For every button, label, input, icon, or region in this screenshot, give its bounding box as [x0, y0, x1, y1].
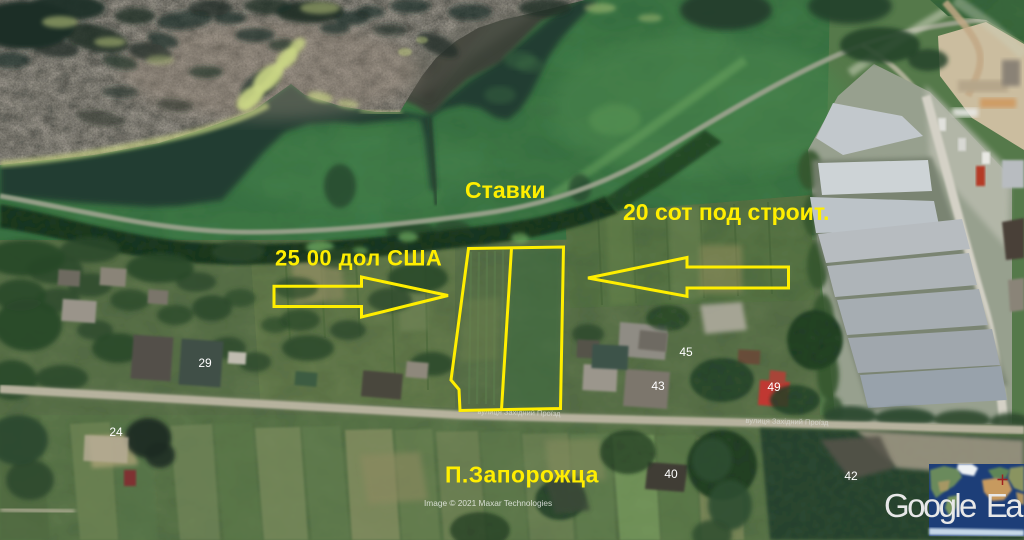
svg-text:49: 49	[767, 380, 781, 394]
svg-text:40: 40	[664, 467, 678, 481]
svg-text:43: 43	[651, 379, 665, 393]
svg-text:Image © 2021 Maxar Technologie: Image © 2021 Maxar Technologies	[424, 498, 552, 508]
svg-text:20 сот под строит.: 20 сот под строит.	[623, 199, 829, 225]
svg-text:П.Запорожца: П.Запорожца	[445, 462, 599, 488]
svg-text:25 00 дол США: 25 00 дол США	[275, 246, 442, 271]
svg-text:24: 24	[109, 425, 123, 439]
svg-text:42: 42	[844, 469, 858, 483]
svg-text:29: 29	[198, 356, 212, 370]
svg-text:GoogleEa: GoogleEa	[884, 487, 1024, 524]
svg-text:Ставки: Ставки	[465, 177, 545, 203]
svg-text:45: 45	[679, 345, 693, 359]
